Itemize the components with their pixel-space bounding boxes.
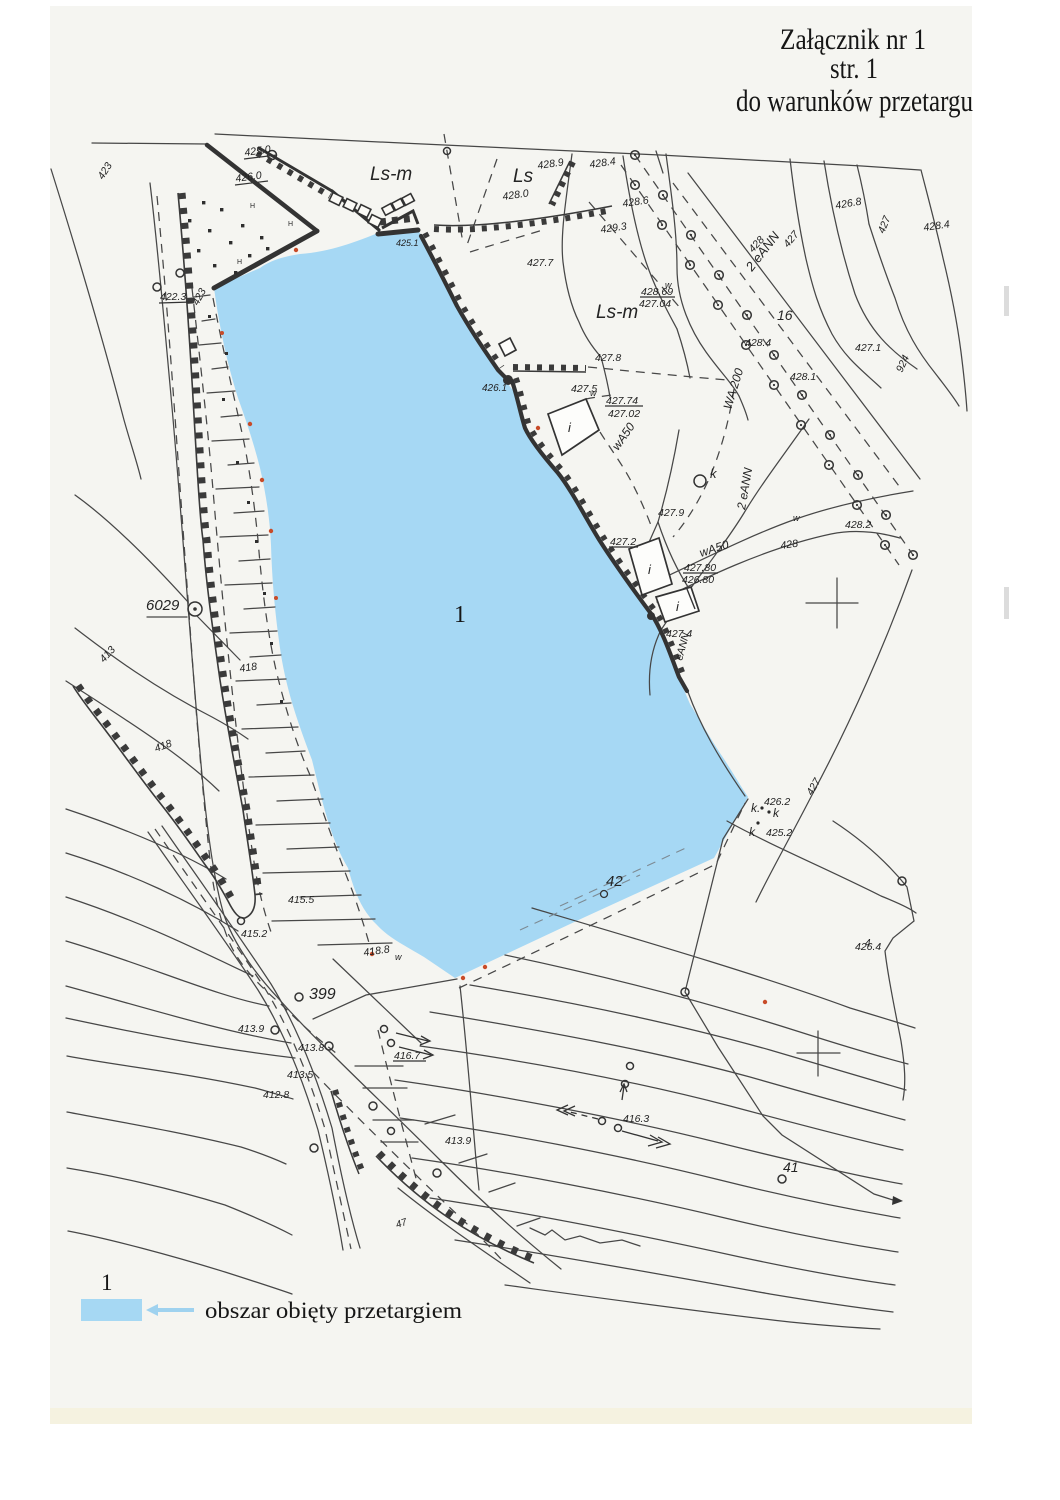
svg-text:obszar obięty przetargiem: obszar obięty przetargiem [205, 1298, 462, 1323]
svg-text:418: 418 [239, 661, 258, 675]
svg-text:4: 4 [865, 938, 871, 949]
svg-text:427.2: 427.2 [610, 536, 636, 548]
svg-text:6029: 6029 [146, 597, 180, 614]
svg-text:Ls: Ls [513, 166, 534, 187]
svg-text:w: w [793, 513, 800, 523]
svg-text:do warunków przetargu: do warunków przetargu [736, 83, 973, 118]
svg-text:w: w [395, 952, 402, 962]
svg-text:427.04: 427.04 [639, 298, 671, 310]
svg-text:16: 16 [777, 307, 793, 323]
svg-text:427.02: 427.02 [608, 408, 640, 420]
svg-text:w: w [590, 388, 597, 398]
svg-text:1: 1 [101, 1270, 113, 1295]
svg-text:k: k [749, 825, 756, 839]
svg-text:42: 42 [606, 873, 623, 890]
svg-text:422.3: 422.3 [160, 291, 186, 303]
svg-text:425.1: 425.1 [396, 238, 419, 248]
svg-text:415.2: 415.2 [241, 928, 267, 940]
svg-text:425.2: 425.2 [766, 827, 792, 839]
svg-text:426.1: 426.1 [482, 383, 507, 394]
svg-text:427.7: 427.7 [527, 257, 554, 269]
svg-text:428.1: 428.1 [790, 371, 816, 383]
svg-text:427.74: 427.74 [606, 395, 638, 407]
svg-text:H: H [237, 259, 242, 266]
svg-text:k: k [773, 806, 780, 820]
svg-text:427.80: 427.80 [684, 562, 716, 574]
svg-text:427.9: 427.9 [658, 507, 684, 519]
svg-text:415.5: 415.5 [288, 894, 314, 906]
svg-text:41: 41 [783, 1159, 799, 1175]
svg-text:k.: k. [751, 801, 760, 815]
svg-text:413.5: 413.5 [287, 1069, 313, 1081]
svg-text:416.7: 416.7 [394, 1050, 421, 1062]
svg-text:416.3: 416.3 [623, 1113, 649, 1125]
svg-text:1: 1 [454, 602, 466, 628]
svg-text:399: 399 [309, 986, 336, 1003]
svg-text:427.1: 427.1 [855, 342, 881, 354]
svg-text:426.80: 426.80 [682, 574, 714, 586]
svg-text:Ls-m: Ls-m [596, 302, 638, 323]
svg-text:428: 428 [780, 538, 799, 552]
svg-text:413.9: 413.9 [238, 1023, 264, 1035]
svg-text:427.8: 427.8 [595, 352, 621, 364]
svg-text:428.69: 428.69 [641, 286, 673, 298]
svg-text:428.4: 428.4 [745, 337, 771, 349]
svg-text:H: H [288, 221, 293, 228]
svg-text:str. 1: str. 1 [830, 52, 878, 85]
svg-text:413.9: 413.9 [445, 1135, 471, 1147]
svg-text:Ls-m: Ls-m [370, 164, 412, 185]
svg-text:412.8: 412.8 [263, 1089, 289, 1101]
svg-text:428.2: 428.2 [845, 519, 871, 531]
svg-text:413.8: 413.8 [298, 1042, 324, 1054]
svg-text:H: H [250, 203, 255, 210]
